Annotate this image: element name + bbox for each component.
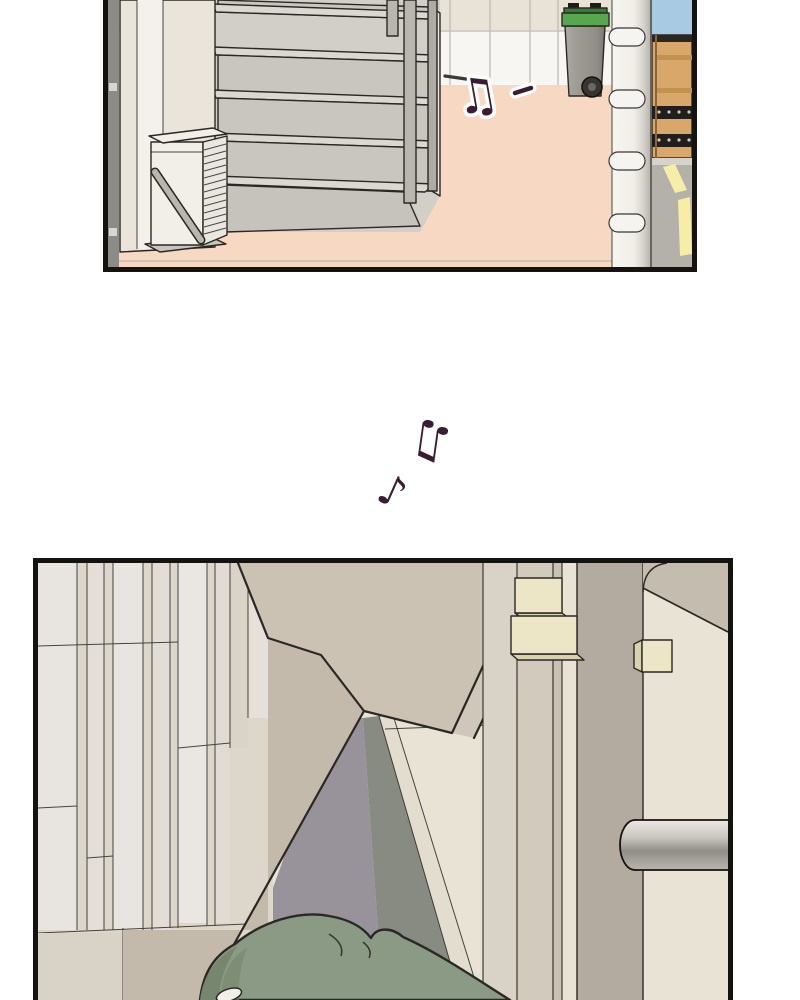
panel-frame bbox=[728, 558, 733, 1000]
ac-unit bbox=[145, 128, 227, 252]
post bbox=[577, 563, 643, 1000]
panel-frame bbox=[103, 267, 697, 272]
music-notes-middle: ♫ ♪ bbox=[355, 398, 485, 533]
comic-page: ♫ ♫ ♪ bbox=[0, 0, 800, 1000]
bin-lid bbox=[562, 13, 609, 26]
pipe bbox=[620, 820, 728, 870]
single-note-icon: ♪ bbox=[370, 464, 414, 520]
trash-bin bbox=[562, 3, 609, 97]
utility-pole bbox=[609, 0, 652, 267]
road-stripe bbox=[678, 197, 692, 256]
street-background bbox=[652, 0, 692, 267]
wall-gap bbox=[108, 0, 119, 267]
panel-frame bbox=[692, 0, 697, 272]
panel-bottom-interior bbox=[33, 558, 733, 1000]
beamed-note-icon: ♫ bbox=[407, 411, 459, 475]
wall-base bbox=[38, 933, 123, 1000]
staircase bbox=[209, 0, 440, 232]
sky bbox=[652, 0, 692, 35]
panel-frame bbox=[33, 558, 733, 563]
panel-top-exterior: ♫ bbox=[103, 0, 697, 272]
panel-top-scene: ♫ bbox=[103, 0, 697, 272]
panel-frame bbox=[103, 0, 108, 272]
panel-frame bbox=[33, 558, 38, 1000]
panel-bottom-scene bbox=[33, 558, 733, 1000]
